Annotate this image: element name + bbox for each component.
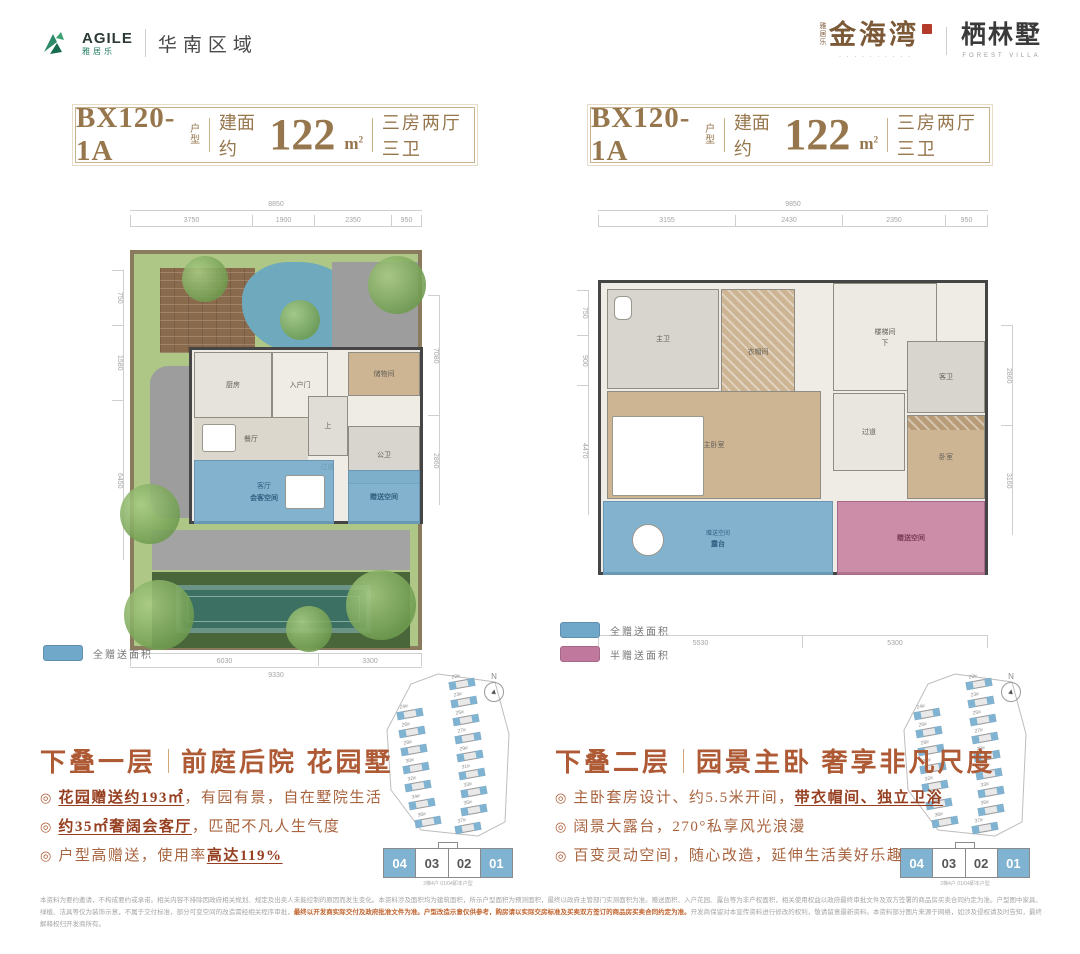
unit-04: 04 <box>384 849 416 877</box>
dim: 2430 <box>736 215 843 227</box>
unit-03: 03 <box>933 849 965 877</box>
dining-table-icon <box>202 424 236 452</box>
dim: 1900 <box>253 215 315 227</box>
strip-caption: 2梯4户 01/04即本户型 <box>383 880 513 887</box>
bullet-1: ◎ 主卧套房设计、约5.5米开间，带衣帽间、独立卫浴 <box>555 788 943 808</box>
compass-icon: N ▲ <box>483 672 505 702</box>
room-hall: 过道 <box>833 393 905 471</box>
unit-04: 04 <box>901 849 933 877</box>
model-tag: 户型 <box>190 124 200 146</box>
dim: 6030 <box>130 653 319 666</box>
unit-01: 01 <box>481 849 512 877</box>
panel-floor2: BX120-1A 户型 建面约 122 m2 三房两厅三卫 9850 3155 … <box>553 100 1040 910</box>
dim-bottom-total: 9330 <box>130 667 422 680</box>
umbrella-icon <box>632 524 664 556</box>
bullet-2: ◎ 阔景大露台，270°私享风光浪漫 <box>555 817 806 837</box>
unit-03: 03 <box>416 849 448 877</box>
dim: 2860 <box>428 415 440 505</box>
wardrobe-icon <box>908 416 984 430</box>
dim: 7080 <box>428 295 440 415</box>
floorplan-2: 9850 3155 2430 2350 950 750 900 4470 286… <box>553 175 1040 675</box>
dim: 3300 <box>319 653 422 666</box>
tree <box>368 256 426 314</box>
unit-type-header-left: BX120-1A 户型 建面约 122 m2 三房两厅三卫 <box>75 107 475 163</box>
project-tagline: · · · · · · · · · · <box>839 54 912 60</box>
room-storage: 储物间 <box>348 352 420 396</box>
gift-area-living: 客厅 会客空间 <box>194 460 334 524</box>
dim: 1580 <box>112 325 124 400</box>
dim: 750 <box>112 270 124 325</box>
sitemap-left: N ▲ 24# 26# 28# 30# 32# 34# 36# 22# 23# … <box>383 672 513 887</box>
area-unit: m2 <box>344 134 363 154</box>
brand-left: AGILE 雅居乐 华南区域 <box>40 28 258 58</box>
floorplan-1: 8850 3750 1900 2350 950 750 1580 6450 70… <box>38 175 510 675</box>
agile-wordmark-cn: 雅居乐 <box>82 48 133 56</box>
dim-top-total: 9850 <box>598 199 988 211</box>
bullet-2: ◎ 约35㎡奢阔会客厅，匹配不凡人生气度 <box>40 817 340 837</box>
unit-strip: 04 03 02 01 <box>383 848 513 878</box>
dim: 6450 <box>112 400 124 560</box>
dim: 900 <box>577 335 589 385</box>
region-label: 华南区域 <box>158 30 258 57</box>
project-logo: 雅居乐 金海湾 · · · · · · · · · · <box>819 22 932 60</box>
bullet-3: ◎ 户型高赠送，使用率高达119% <box>40 846 283 866</box>
unit-02: 02 <box>449 849 481 877</box>
tree <box>286 606 332 652</box>
tree <box>124 580 194 650</box>
room-master: 主卧室 <box>607 391 821 499</box>
header-divider <box>372 118 373 152</box>
header-divider <box>887 118 888 152</box>
bed-icon <box>612 416 704 496</box>
patio-band <box>152 530 410 570</box>
rooms-label: 三房两厅三卫 <box>897 109 989 161</box>
section-title-floor1: 下叠一层 前庭后院 花园墅 <box>40 742 394 779</box>
legend-chip-blue <box>560 622 600 638</box>
dim: 950 <box>392 215 422 227</box>
room-guest-bath: 客卫 <box>907 341 985 413</box>
tree <box>182 256 228 302</box>
panel-floor1: BX120-1A 户型 建面约 122 m2 三房两厅三卫 8850 3750 … <box>38 100 510 910</box>
dim: 3155 <box>598 215 736 227</box>
gift-area-half: 赠送空间 <box>837 501 985 575</box>
area-label: 建面约 <box>734 109 775 161</box>
brand-divider <box>145 29 146 57</box>
brand-divider-2 <box>946 27 947 55</box>
area-value: 122 <box>269 113 335 157</box>
garden-plot: 厨房 入户门 储物间 上 公卫 餐厅 <box>130 250 422 650</box>
room-master-bath: 主卫 <box>607 289 719 389</box>
title-divider <box>683 749 684 773</box>
bullet-3: ◎ 百变灵动空间，随心改造，延伸生活美好乐趣 <box>555 846 903 866</box>
model-tag: 户型 <box>705 124 715 146</box>
bullet-1: ◎ 花园赠送约193㎡，有园有景，自在墅院生活 <box>40 788 382 808</box>
model-code: BX120-1A <box>76 102 181 168</box>
pool <box>176 585 371 633</box>
dim: 5300 <box>803 635 988 648</box>
villa-logo: 栖林墅 FOREST VILLA <box>961 23 1042 59</box>
seal-icon <box>922 24 932 34</box>
agile-logo-icon <box>40 28 70 58</box>
disclaimer-text: 本资料为要约邀请，不构成要约或承诺。相关内容不排除因政府相关规划、规定及出卖人未… <box>40 895 1042 932</box>
dim: 2350 <box>843 215 946 227</box>
sitemap-right: N ▲ 24# 26# 28# 30# 32# 34# 36# 22# 23# … <box>900 672 1030 887</box>
pool-inner <box>187 596 360 622</box>
toilet-icon <box>614 296 632 320</box>
strip-caption: 2梯4户 01/04即本户型 <box>900 880 1030 887</box>
model-code: BX120-1A <box>591 102 696 168</box>
section-title-floor2: 下叠二层 园景主卧 奢享非凡尺度 <box>555 742 996 779</box>
project-prefix: 雅居乐 <box>819 22 826 46</box>
unit-02: 02 <box>966 849 998 877</box>
dim: 3750 <box>130 215 253 227</box>
unit-strip: 04 03 02 01 <box>900 848 1030 878</box>
legend-chip-pink <box>560 646 600 662</box>
unit-01: 01 <box>998 849 1029 877</box>
room-kitchen: 厨房 <box>194 352 272 418</box>
dim-top-total: 8850 <box>130 199 422 211</box>
gift-area-room: 赠送空间 <box>348 470 420 524</box>
legend-full-gift: 全赠送面积 <box>560 622 670 638</box>
dim: 2350 <box>315 215 392 227</box>
brand-right: 雅居乐 金海湾 · · · · · · · · · · 栖林墅 FOREST V… <box>819 22 1042 60</box>
dim: 2860 <box>1001 325 1013 425</box>
rooms-label: 三房两厅三卫 <box>382 109 474 161</box>
header-divider <box>209 118 210 152</box>
gift-area-terrace: 赠送空间 露台 <box>603 501 833 575</box>
dim: 3160 <box>1001 425 1013 535</box>
villa-name: 栖林墅 <box>961 23 1042 48</box>
title-divider <box>168 749 169 773</box>
tree <box>120 484 180 544</box>
unit-type-header-right: BX120-1A 户型 建面约 122 m2 三房两厅三卫 <box>590 107 990 163</box>
area-unit: m2 <box>859 134 878 154</box>
dim: 750 <box>577 290 589 335</box>
dim: 4470 <box>577 385 589 515</box>
room-bedroom: 卧室 <box>907 415 985 499</box>
tree <box>280 300 320 340</box>
header-divider <box>724 118 725 152</box>
dim: 950 <box>946 215 988 227</box>
house-footprint-2: 主卫 衣帽间 楼梯间 下 过道 客卫 卧室 <box>598 280 988 575</box>
room-stair: 上 <box>308 396 348 456</box>
legend-full-gift: 全赠送面积 <box>43 645 153 661</box>
poster-page: AGILE 雅居乐 华南区域 雅居乐 金海湾 · · · · · · · · ·… <box>0 0 1080 954</box>
compass-icon: N ▲ <box>1000 672 1022 702</box>
area-value: 122 <box>784 113 850 157</box>
area-label: 建面约 <box>219 109 260 161</box>
agile-wordmark: AGILE <box>82 31 133 46</box>
room-dining: 餐厅 <box>194 418 308 460</box>
disclaimer-highlight: 最终以开发商实际交付及政府批准文件为准。户型改造示意仅供参考，购房请以实际交房标… <box>294 909 691 916</box>
house-footprint: 厨房 入户门 储物间 上 公卫 餐厅 <box>189 347 423 524</box>
villa-name-en: FOREST VILLA <box>962 53 1040 59</box>
tree <box>346 570 416 640</box>
legend-chip-blue <box>43 645 83 661</box>
project-name: 金海湾 <box>829 22 919 49</box>
sofa-icon <box>285 475 325 509</box>
legend-half-gift: 半赠送面积 <box>560 646 670 662</box>
